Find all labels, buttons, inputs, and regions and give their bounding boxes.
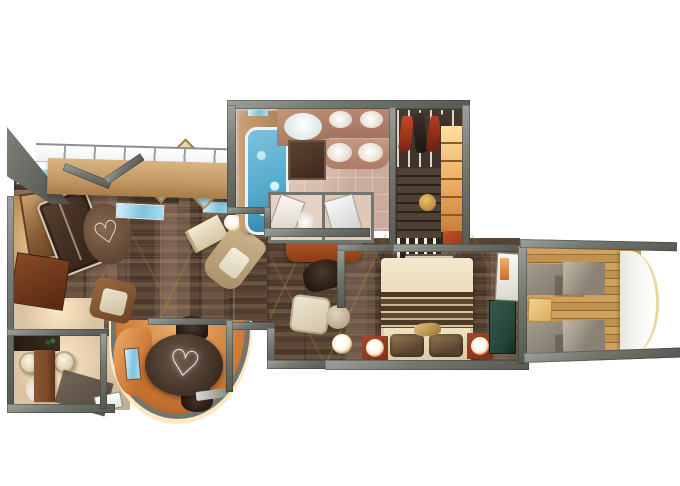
hall-bottom-wall-lower <box>267 360 331 369</box>
bedroom-left-wall <box>337 250 345 308</box>
lounger-top-seat <box>563 262 606 296</box>
closet-bottom-wall <box>393 244 523 252</box>
door-copper-accent <box>500 258 509 280</box>
lounger-bottom-seat <box>563 319 606 353</box>
lounger-bottom-back <box>527 322 564 354</box>
rug-heart-motif: ♡ <box>90 216 123 252</box>
vanity-sink-2 <box>360 111 383 128</box>
round-side-table <box>326 305 350 329</box>
teal-chest <box>489 300 516 354</box>
console-window-slot <box>124 347 142 380</box>
bath-block-wall-left <box>227 105 236 215</box>
nightstand-lamp-left <box>366 339 384 357</box>
floor-plan-canvas: ♡ ♡ <box>0 0 680 486</box>
headboard-inset-right <box>429 334 463 357</box>
bedroom-bottom-wall <box>325 360 529 370</box>
glass-tabletop-left <box>116 203 165 220</box>
dining-nook-top-wall <box>148 318 232 325</box>
bath-bottom-wall <box>264 228 370 237</box>
guest-bath-door <box>34 350 55 402</box>
entry-divider-wall <box>7 329 109 336</box>
table-swirl-motif: ♡ <box>166 345 203 385</box>
lit-wardrobe <box>441 126 462 232</box>
lounger-top-back <box>527 264 564 296</box>
bath-mirror <box>288 140 326 180</box>
vanity-sink-4 <box>358 143 383 162</box>
bedroom-top-wall <box>337 244 397 252</box>
minibar-cabinet <box>12 334 60 351</box>
nightstand-lamp-right <box>471 337 489 355</box>
vanity-sink-1 <box>329 111 352 128</box>
bath-closet-divider <box>389 107 396 247</box>
outer-wall-bottom-left <box>7 404 115 413</box>
balcony-railing <box>620 251 659 355</box>
bedroom-balcony-divider <box>518 246 527 364</box>
closet-stool <box>419 194 436 211</box>
ceiling-light-oval <box>284 113 322 140</box>
bath-wall-tv <box>248 110 268 116</box>
dining-nook-right-wall <box>226 320 233 392</box>
headboard-inset-left <box>390 334 424 357</box>
balcony-side-table <box>528 298 553 323</box>
vanity-sink-3 <box>327 143 352 162</box>
living-wood-wall-band <box>47 158 235 199</box>
sphere-lamp-hall <box>332 334 352 354</box>
bath-block-wall-right <box>462 105 470 252</box>
entry-console-desk <box>9 252 70 311</box>
hall-armchair <box>289 294 331 335</box>
bath-block-wall-top <box>227 100 470 109</box>
outer-wall-left <box>7 196 14 412</box>
oval-dining-table: ♡ <box>145 334 223 396</box>
corridor-wall <box>100 333 107 409</box>
